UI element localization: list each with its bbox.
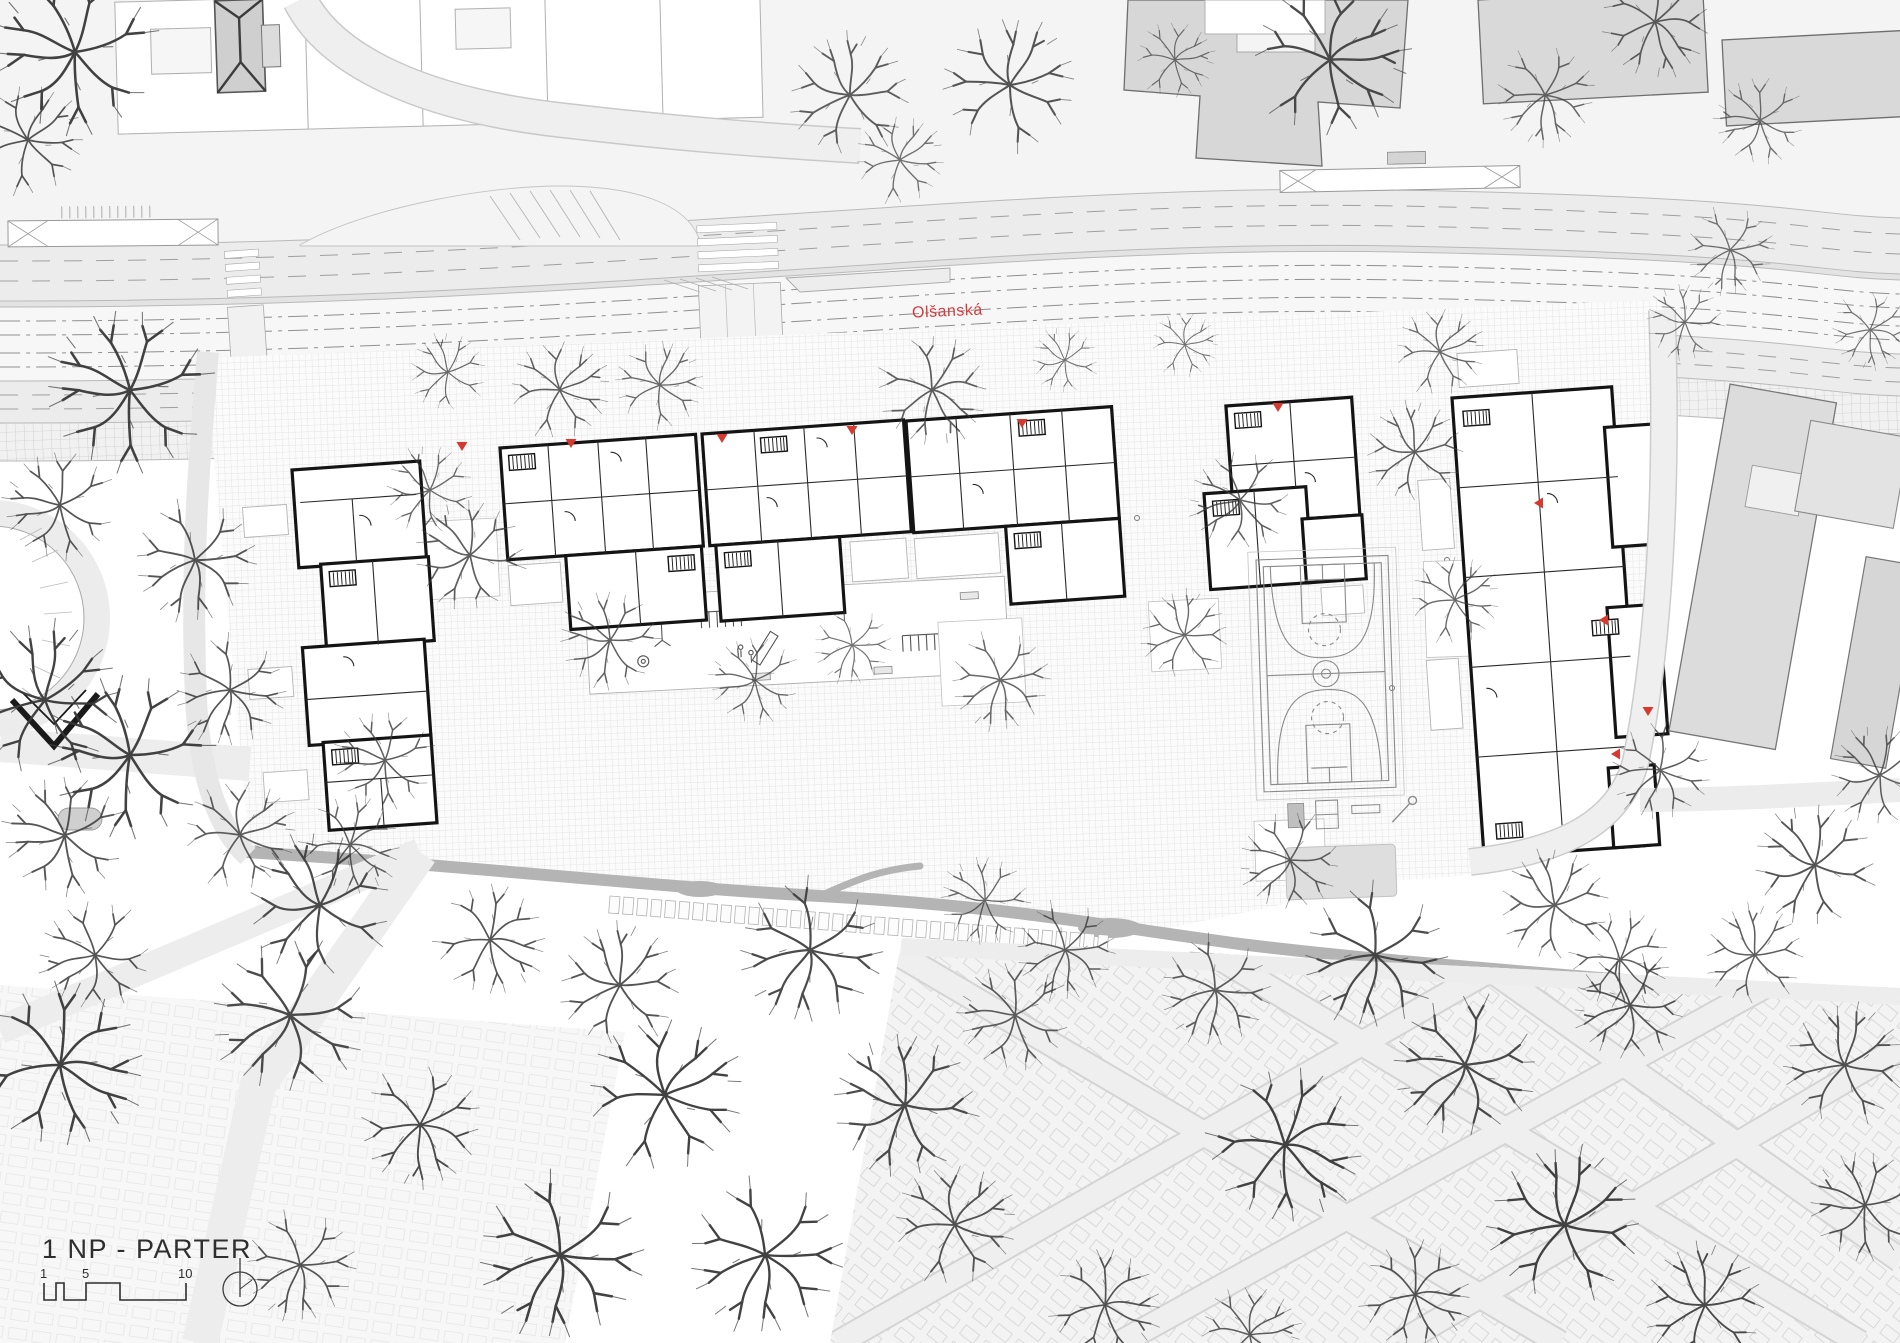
oval-planter bbox=[58, 808, 102, 830]
scale-label-10: 10 bbox=[178, 1266, 192, 1281]
scale-label-1: 1 bbox=[40, 1266, 47, 1281]
street-label: Olšanská bbox=[912, 302, 983, 322]
plan-title: 1 NP - PARTER bbox=[42, 1234, 252, 1264]
water-feature bbox=[1285, 844, 1397, 900]
scale-label-5: 5 bbox=[82, 1266, 89, 1281]
building-cluster-2 bbox=[500, 434, 708, 633]
cemetery-plots bbox=[820, 930, 1900, 1343]
site-plan-page: Olšanská bbox=[0, 0, 1900, 1343]
site-plan-drawing: Olšanská bbox=[0, 0, 1900, 1343]
